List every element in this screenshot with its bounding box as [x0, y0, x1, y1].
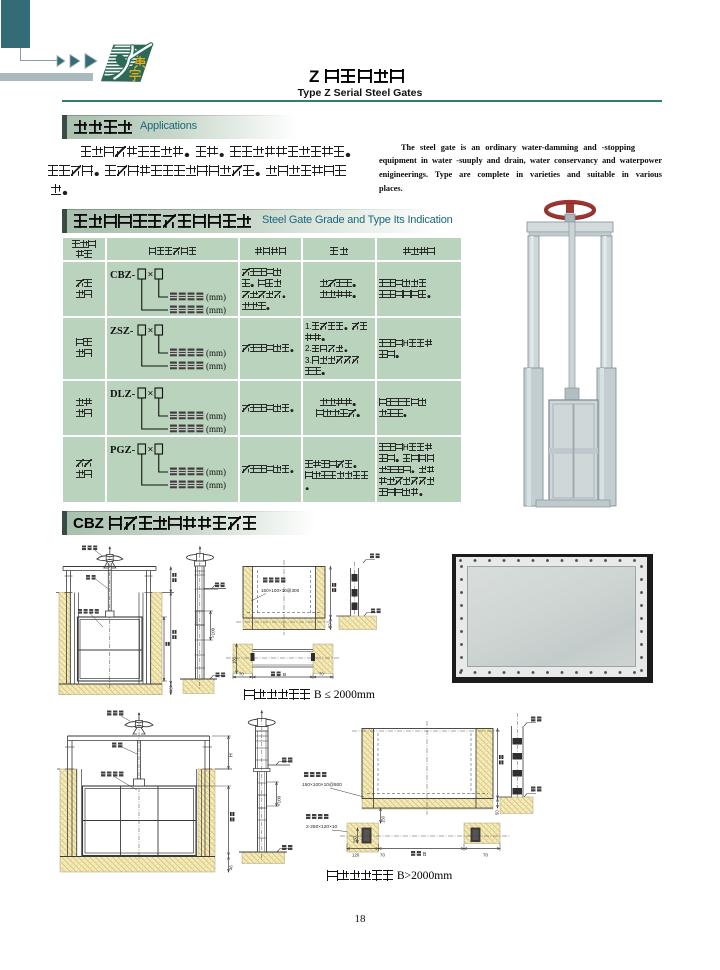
svg-text:(mm): (mm) [206, 424, 226, 434]
svg-text:(mm): (mm) [206, 305, 226, 315]
svg-text:150: 150 [381, 815, 386, 823]
svg-text:B: B [423, 852, 427, 858]
svg-text:70: 70 [380, 853, 385, 858]
svg-text:(mm): (mm) [206, 348, 226, 358]
svg-text:70: 70 [319, 672, 324, 677]
svg-text:(mm): (mm) [206, 467, 226, 477]
svg-text:H: H [229, 753, 235, 757]
svg-text:250: 250 [353, 835, 358, 843]
svg-text:×: × [148, 389, 154, 400]
svg-text:46: 46 [169, 687, 174, 692]
svg-text:150×100×10@300: 150×100×10@300 [261, 588, 300, 593]
svg-text:CBZ-: CBZ- [110, 270, 136, 281]
svg-text:(mm): (mm) [206, 361, 226, 371]
svg-text:B: B [283, 672, 286, 678]
svg-text:50: 50 [495, 810, 500, 815]
svg-text:>100: >100 [277, 795, 282, 806]
svg-text:46: 46 [229, 865, 234, 870]
svg-text:×: × [148, 445, 154, 456]
svg-text:×: × [148, 270, 154, 281]
svg-text:150: 150 [232, 656, 237, 664]
svg-text:120: 120 [352, 853, 360, 858]
svg-text:150×100×10@500: 150×100×10@500 [302, 782, 342, 788]
svg-text:70: 70 [239, 672, 244, 677]
svg-text:ZSZ-: ZSZ- [110, 326, 134, 337]
svg-text:(mm): (mm) [206, 480, 226, 490]
svg-text:70: 70 [483, 853, 488, 858]
svg-text:(mm): (mm) [206, 411, 226, 421]
svg-text:×: × [148, 326, 154, 337]
svg-text:(mm): (mm) [206, 292, 226, 302]
svg-text:2-250×120×10: 2-250×120×10 [306, 824, 338, 830]
svg-text:PGZ-: PGZ- [110, 445, 136, 456]
svg-text:DLZ-: DLZ- [110, 389, 136, 400]
svg-text:>100: >100 [211, 627, 216, 638]
